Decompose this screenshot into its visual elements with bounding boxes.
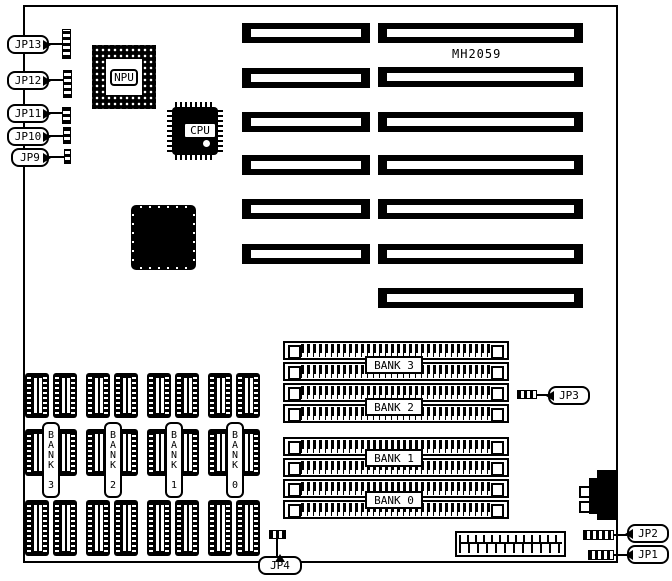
cpu-pin1-dot <box>203 140 210 147</box>
dram-chip <box>208 373 232 418</box>
isa-slot <box>378 155 583 175</box>
keyboard-connector-pin <box>579 486 591 498</box>
jp10-callout: JP10 <box>7 127 49 146</box>
npu-socket-center: NPU <box>106 59 142 95</box>
isa-slot <box>378 67 583 87</box>
dram-chip <box>53 373 77 418</box>
jp9-jumper-block <box>64 149 71 164</box>
dip-bank0-label: BANK 0 <box>226 422 244 498</box>
simm-bank1-label: BANK 1 <box>365 449 423 467</box>
jp3-label: JP3 <box>559 389 579 402</box>
jp1-callout: JP1 <box>627 545 669 564</box>
dip-bank3-label: BANK 3 <box>42 422 60 498</box>
jp3-callout: JP3 <box>548 386 590 405</box>
npu-label: NPU <box>110 69 138 86</box>
pin-header-connector <box>455 531 566 557</box>
jp1-jumper-block <box>588 550 614 560</box>
dram-chip <box>86 500 110 556</box>
chipset-chip <box>131 205 196 270</box>
isa-slot <box>242 68 370 88</box>
jp2-label: JP2 <box>638 527 658 540</box>
jp13-label: JP13 <box>15 38 42 51</box>
dram-chip <box>114 500 138 556</box>
dip-bank1-label: BANK 1 <box>165 422 183 498</box>
jp2-jumper-block <box>583 530 614 540</box>
npu-socket: NPU <box>92 45 156 109</box>
dram-chip <box>175 373 199 418</box>
isa-slot <box>378 288 583 308</box>
jp11-callout: JP11 <box>7 104 49 123</box>
jp10-label: JP10 <box>15 130 42 143</box>
jp3-jumper-block <box>517 390 537 399</box>
simm-bank2-label: BANK 2 <box>365 398 423 416</box>
cpu-label: CPU <box>183 122 217 139</box>
callout-arrow-icon <box>43 40 56 50</box>
isa-slot <box>378 23 583 43</box>
jp9-label: JP9 <box>20 151 40 164</box>
callout-arrow-icon <box>541 391 554 401</box>
simm-bank3-label: BANK 3 <box>365 356 423 374</box>
dram-chip <box>236 373 260 418</box>
callout-arrow-icon <box>43 109 56 119</box>
jp12-label: JP12 <box>15 74 42 87</box>
jp11-label: JP11 <box>15 107 42 120</box>
callout-arrow-icon <box>620 529 633 539</box>
isa-slot <box>378 112 583 132</box>
dram-chip <box>147 373 171 418</box>
callout-arrow-icon <box>275 549 285 562</box>
dram-chip <box>53 500 77 556</box>
isa-slot <box>378 244 583 264</box>
motherboard-diagram: MH2059 NPU CPU JP13 JP12 <box>0 0 672 581</box>
isa-slot <box>242 199 370 219</box>
keyboard-connector <box>597 470 617 520</box>
dram-chip <box>175 500 199 556</box>
jp12-callout: JP12 <box>7 71 49 90</box>
jp10-jumper-block <box>63 127 71 144</box>
isa-slot <box>242 244 370 264</box>
simm-bank0-label: BANK 0 <box>365 491 423 509</box>
dram-chip <box>147 500 171 556</box>
jp4-jumper-block <box>269 530 286 539</box>
jp11-jumper-block <box>62 107 71 124</box>
callout-arrow-icon <box>620 550 633 560</box>
pin-header-sockets <box>459 542 562 553</box>
dram-chip <box>25 373 49 418</box>
jp13-jumper-block <box>62 29 71 59</box>
callout-arrow-icon <box>43 153 56 163</box>
jp4-callout: JP4 <box>258 556 302 575</box>
model-label: MH2059 <box>452 47 501 61</box>
isa-slot <box>242 155 370 175</box>
dip-bank2-label: BANK 2 <box>104 422 122 498</box>
callout-arrow-icon <box>43 132 56 142</box>
dram-chip <box>25 500 49 556</box>
jp2-callout: JP2 <box>627 524 669 543</box>
callout-arrow-icon <box>43 76 56 86</box>
isa-slot <box>242 112 370 132</box>
dram-chip <box>236 500 260 556</box>
jp9-callout: JP9 <box>11 148 49 167</box>
jp13-callout: JP13 <box>7 35 49 54</box>
isa-slot <box>378 199 583 219</box>
dram-chip <box>114 373 138 418</box>
isa-slot <box>242 23 370 43</box>
dram-chip <box>208 500 232 556</box>
jp1-label: JP1 <box>638 548 658 561</box>
keyboard-connector-pin <box>579 501 591 513</box>
cpu-chip: CPU <box>167 102 223 160</box>
cpu-body: CPU <box>172 107 218 155</box>
pin-header-pins <box>459 535 562 542</box>
dram-chip <box>86 373 110 418</box>
jp12-jumper-block <box>63 70 72 98</box>
